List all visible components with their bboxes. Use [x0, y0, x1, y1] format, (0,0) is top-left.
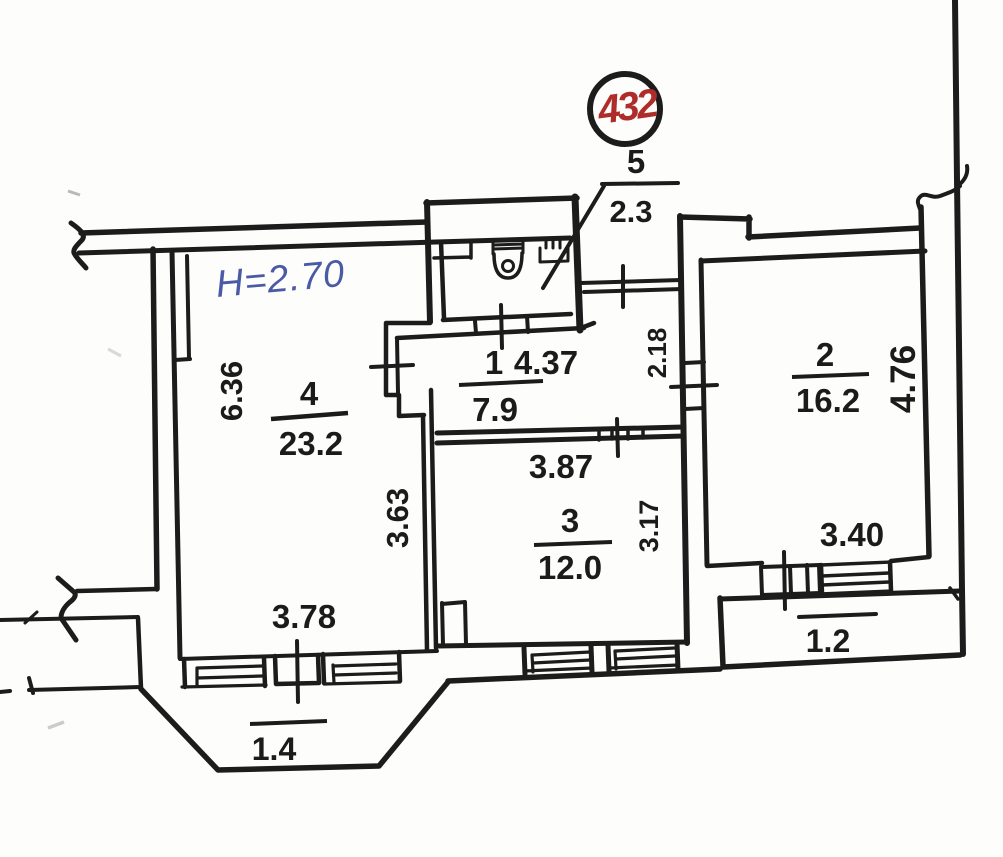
- svg-text:5: 5: [627, 143, 645, 180]
- svg-text:3.87: 3.87: [529, 448, 593, 485]
- svg-text:3.78: 3.78: [272, 598, 336, 635]
- svg-text:3.40: 3.40: [820, 516, 884, 553]
- svg-text:3.17: 3.17: [634, 500, 664, 553]
- svg-text:4: 4: [300, 375, 319, 412]
- svg-text:2.3: 2.3: [609, 194, 652, 229]
- svg-text:7.9: 7.9: [472, 391, 518, 428]
- svg-text:1.2: 1.2: [806, 623, 850, 659]
- svg-text:4.76: 4.76: [884, 345, 923, 413]
- svg-text:432: 432: [594, 81, 661, 133]
- svg-text:2: 2: [816, 336, 834, 373]
- svg-text:2.18: 2.18: [642, 328, 672, 379]
- svg-text:1.4: 1.4: [252, 731, 297, 767]
- svg-text:16.2: 16.2: [796, 382, 860, 419]
- svg-text:6.36: 6.36: [214, 361, 249, 421]
- svg-text:3.63: 3.63: [380, 488, 415, 548]
- svg-text:4.37: 4.37: [514, 344, 578, 381]
- svg-text:23.2: 23.2: [279, 425, 343, 462]
- svg-text:1: 1: [485, 344, 503, 381]
- svg-text:12.0: 12.0: [538, 549, 602, 586]
- svg-text:3: 3: [561, 502, 579, 539]
